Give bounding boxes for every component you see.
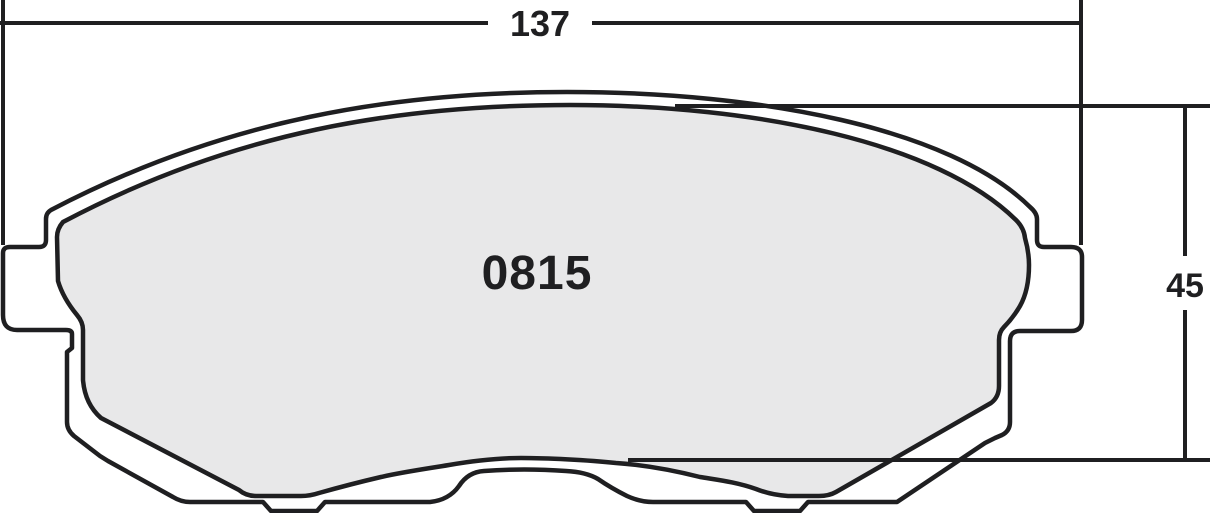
width-dimension-label: 137 [510, 3, 570, 44]
friction-material-outline [57, 105, 1029, 496]
brake-pad-technical-drawing: 137 45 0815 [0, 0, 1210, 513]
part-number-label: 0815 [482, 247, 593, 300]
drawing-canvas: 137 45 0815 [0, 0, 1210, 513]
height-dimension-label: 45 [1166, 267, 1204, 305]
